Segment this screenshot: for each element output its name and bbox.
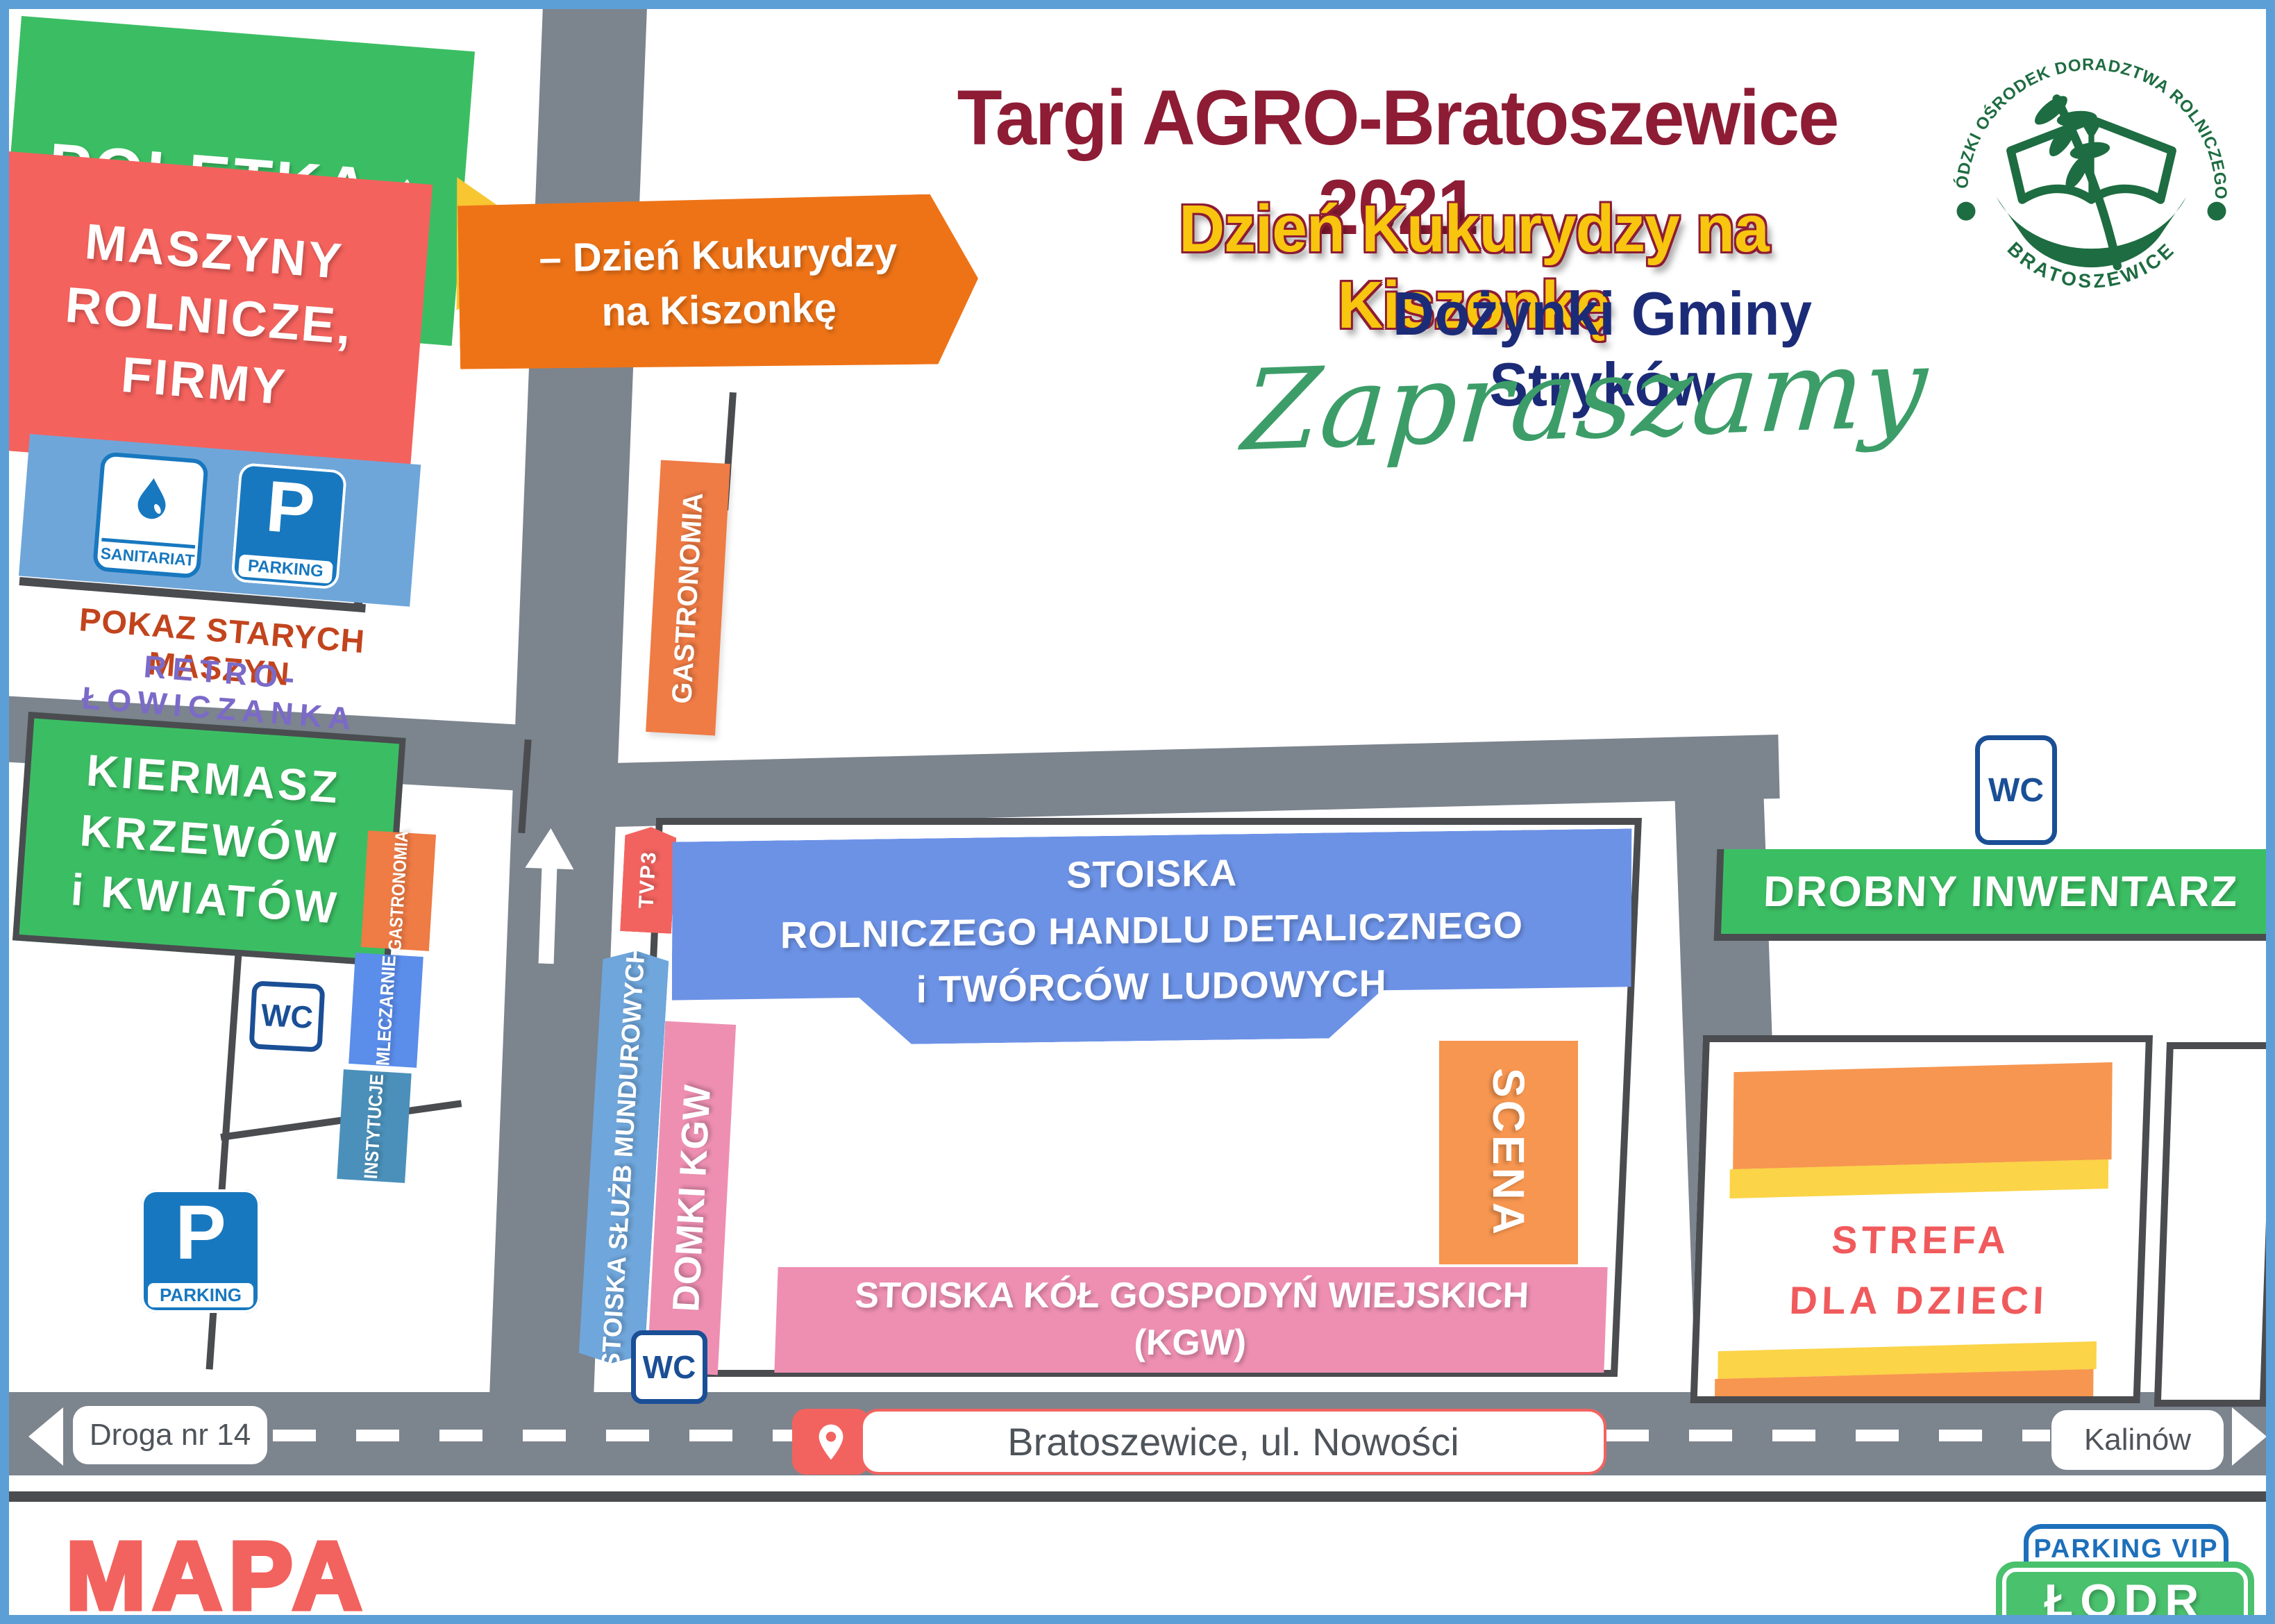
strip-mleczarnie: MLECZARNIE xyxy=(349,953,423,1068)
welcome-script-text: Zapraszamy xyxy=(1220,321,1950,477)
location-pin-icon xyxy=(811,1416,851,1468)
banner-kgw: STOISKA KÓŁ GOSPODYŃ WIEJSKICH (KGW) xyxy=(774,1267,1607,1373)
strip-gastronomia-mid-label: GASTRONOMIA xyxy=(666,492,710,704)
banner-dzien-kukurydzy-label: – Dzień Kukurydzy na Kiszonkę xyxy=(539,226,898,341)
road-label-kalinow: Kalinów xyxy=(2051,1410,2224,1470)
parking-sign-small: P PARKING xyxy=(230,462,347,589)
event-map-poster: POLETKA ↑ MASZYNY ROLNICZE, FIRMY SANITA… xyxy=(0,0,2275,1624)
parking-small-label: PARKING xyxy=(238,554,333,583)
footer-parking-vip-label: PARKING VIP xyxy=(2029,1529,2224,1564)
wc-label: WC xyxy=(643,1348,696,1386)
empty-plot-right xyxy=(2154,1042,2275,1407)
strefa-label: STREFA DLA DZIECI xyxy=(1699,1210,2140,1331)
footer-mapa-label: MAPA xyxy=(66,1521,369,1624)
strip-gastronomia-mid: GASTRONOMIA xyxy=(646,460,730,736)
sanitariat-parking-block: SANITARIAT P PARKING xyxy=(19,434,421,607)
strip-instytucje-label: INSTYTUCJE xyxy=(360,1073,388,1180)
logo-dot-left xyxy=(1956,202,1975,221)
area-kiermasz-label: KIERMASZ KRZEWÓW i KWIATÓW xyxy=(69,740,349,939)
strip-gastronomia-left: GASTRONOMIA xyxy=(361,830,436,951)
location-pin-badge xyxy=(792,1409,870,1475)
strip-mleczarnie-label: MLECZARNIE xyxy=(372,955,401,1066)
strip-domki-kgw-label: DOMKI KGW xyxy=(664,1084,719,1313)
area-kiermasz: KIERMASZ KRZEWÓW i KWIATÓW xyxy=(12,712,406,966)
road-label-kalinow-text: Kalinów xyxy=(2084,1423,2191,1457)
wc-badge-bottom: WC xyxy=(631,1330,707,1404)
road-horizontal-mid xyxy=(557,735,1780,828)
road-label-miejsce-text: Bratoszewice, ul. Nowości xyxy=(1007,1419,1459,1464)
strip-gastronomia-left-label: GASTRONOMIA xyxy=(384,830,413,952)
strefa-band-top-orange xyxy=(1733,1062,2113,1169)
footer-lodr-badge: ŁODR xyxy=(1996,1562,2254,1624)
parking-sign-large: P PARKING xyxy=(141,1189,260,1313)
water-drop-icon xyxy=(129,466,175,527)
strip-instytucje: INSTYTUCJE xyxy=(337,1069,411,1183)
footer-lodr-inner-ring xyxy=(2002,1568,2248,1624)
road-label-miejsce: Bratoszewice, ul. Nowości xyxy=(860,1409,1606,1475)
lodr-logo: ŁÓDZKI OŚRODEK DORADZTWA ROLNICZEGO BRAT… xyxy=(1947,35,2235,324)
road-up-arrow-icon xyxy=(522,828,576,964)
area-maszyny-rolnicze: MASZYNY ROLNICZE, FIRMY xyxy=(0,151,433,483)
road-arrow-left-icon xyxy=(28,1407,63,1466)
wc-label: WC xyxy=(1988,771,2044,810)
sanitariat-sign: SANITARIAT xyxy=(92,451,209,579)
wc-badge-left: WC xyxy=(249,980,326,1052)
strefa-dla-dzieci-plot: STREFA DLA DZIECI xyxy=(1690,1035,2153,1403)
road-label-droga-text: Droga nr 14 xyxy=(90,1418,251,1453)
area-scena-label: SCENA xyxy=(1483,1068,1534,1237)
road-label-droga: Droga nr 14 xyxy=(73,1406,267,1464)
sanitariat-label: SANITARIAT xyxy=(100,537,195,569)
tvp3-tag: TVP3 xyxy=(620,826,677,934)
parking-large-label: PARKING xyxy=(148,1283,253,1307)
bottom-separator-line xyxy=(0,1491,2275,1502)
parking-p-letter: P xyxy=(233,462,347,553)
logo-dot-right xyxy=(2208,202,2226,221)
area-scena: SCENA xyxy=(1439,1041,1578,1264)
area-maszyny-label: MASZYNY ROLNICZE, FIRMY xyxy=(58,208,360,425)
wc-badge-right: WC xyxy=(1975,735,2057,845)
wc-label: WC xyxy=(260,997,314,1036)
strip-sluzby-label: STOISKA SŁUŻB MUNDUROWYCH xyxy=(596,944,651,1371)
tvp3-label: TVP3 xyxy=(635,851,662,910)
banner-kgw-label: STOISKA KÓŁ GOSPODYŃ WIEJSKICH (KGW) xyxy=(853,1273,1530,1366)
logo-book-wheat-icon xyxy=(1997,91,2187,267)
area-drobny-label: DROBNY INWENTARZ xyxy=(1763,867,2240,916)
road-arrow-right-icon xyxy=(2232,1407,2267,1466)
area-drobny-inwentarz: DROBNY INWENTARZ xyxy=(1714,849,2275,941)
parking-p-letter: P xyxy=(141,1189,260,1277)
